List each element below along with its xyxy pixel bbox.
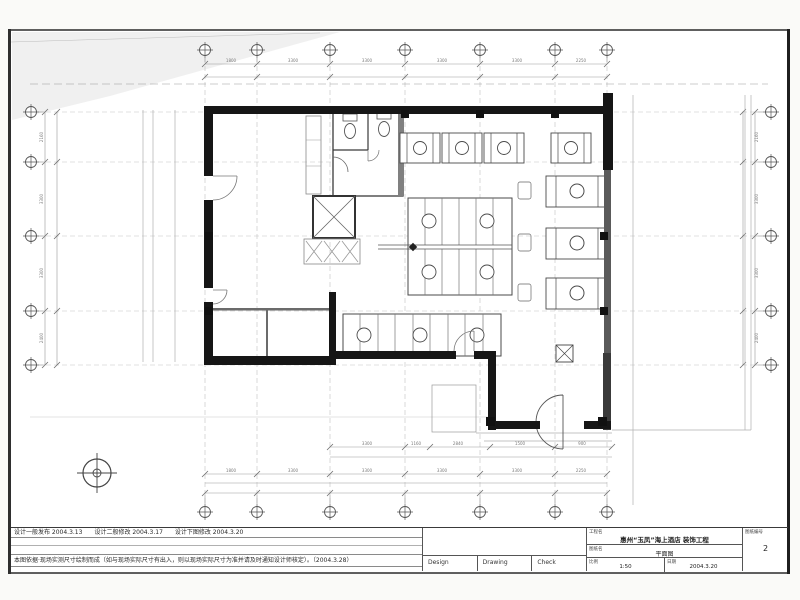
date-value: 2004.3.20 [665, 558, 742, 570]
svg-text:2400: 2400 [754, 332, 759, 343]
dining-table [546, 176, 608, 207]
drawing-name-row: 图纸名 平面图 [587, 545, 742, 558]
drawing-cell: Drawing [478, 556, 533, 571]
wc-fixture [379, 122, 390, 137]
drawing-name-label: 图纸名 [589, 546, 603, 552]
svg-text:1160: 1160 [411, 441, 422, 446]
svg-text:3300: 3300 [512, 468, 523, 473]
dining-tables-bottom-row [343, 314, 501, 356]
svg-text:3300: 3300 [437, 58, 448, 63]
scanned-floor-plan-page: 1800 3300 3300 3300 3300 2250 1800 3300 … [0, 0, 800, 600]
dining-table [442, 133, 482, 163]
sheet-number-label: 图纸编号 [745, 529, 763, 535]
title-block-strip: 设计一般发布 2004.3.13 设计二般修改 2004.3.17 设计下图修改… [11, 527, 788, 571]
svg-text:3300: 3300 [362, 58, 373, 63]
empty-row [11, 546, 422, 555]
dining-table [400, 133, 440, 163]
dining-table [484, 133, 524, 163]
svg-text:3300: 3300 [362, 468, 373, 473]
toilet-area [333, 112, 404, 196]
svg-text:3300: 3300 [39, 267, 44, 278]
scan-edge-left [8, 29, 11, 574]
svg-text:3300: 3300 [39, 193, 44, 204]
svg-text:2250: 2250 [576, 58, 587, 63]
svg-text:3300: 3300 [362, 441, 373, 446]
svg-text:1800: 1800 [226, 468, 237, 473]
revision-note-line: 设计一般发布 2004.3.13 设计二般修改 2004.3.17 设计下图修改… [11, 528, 422, 538]
svg-text:900: 900 [578, 441, 586, 446]
scan-edge-right [787, 29, 790, 574]
svg-text:3300: 3300 [754, 193, 759, 204]
project-name-label: 工程名 [589, 529, 603, 535]
svg-text:3300: 3300 [288, 58, 299, 63]
signoff-row: Design Drawing Check [423, 556, 586, 571]
design-cell: Design [423, 556, 478, 571]
svg-text:3300: 3300 [754, 267, 759, 278]
dining-table [551, 133, 591, 163]
sheet-number-box: 图纸编号 2 [743, 528, 788, 571]
empty-row [11, 538, 422, 546]
check-cell: Check [532, 556, 586, 571]
signoff-blank-cell [423, 528, 586, 556]
svg-text:1500: 1500 [515, 441, 526, 446]
title-block: 工程名 惠州“玉凤”海上酒店 装饰工程 图纸名 平面图 比例 1:50 日期 2… [587, 528, 743, 571]
scale-date-row: 比例 1:50 日期 2004.3.20 [587, 558, 742, 572]
general-note-line: 本图依据·现场实测尺寸绘制而成（如与现场实际尺寸有出入，则以现场实际尺寸为准并请… [11, 555, 422, 567]
project-name-row: 工程名 惠州“玉凤”海上酒店 装饰工程 [587, 528, 742, 545]
wc-fixture [345, 124, 356, 139]
project-name-value: 惠州“玉凤”海上酒店 装饰工程 [587, 528, 742, 544]
svg-text:3300: 3300 [288, 468, 299, 473]
dining-table [546, 278, 608, 309]
svg-text:3300: 3300 [437, 468, 448, 473]
scale-value: 1:50 [587, 558, 664, 570]
svg-text:3300: 3300 [512, 58, 523, 63]
scale-cell: 比例 1:50 [587, 558, 665, 572]
date-label: 日期 [667, 559, 676, 565]
dining-table [546, 228, 608, 259]
drawing-name-value: 平面图 [587, 545, 742, 558]
dining-tables-top-row [400, 133, 591, 163]
svg-text:2400: 2400 [39, 332, 44, 343]
svg-text:1800: 1800 [226, 58, 237, 63]
svg-text:2160: 2160 [39, 131, 44, 142]
date-cell: 日期 2004.3.20 [665, 558, 742, 572]
signoff-section: Design Drawing Check [423, 528, 587, 571]
scale-label: 比例 [589, 559, 598, 565]
elevator-shaft [313, 196, 355, 238]
svg-text:2250: 2250 [576, 468, 587, 473]
svg-text:2160: 2160 [754, 131, 759, 142]
floor-plan-drawing: 1800 3300 3300 3300 3300 2250 1800 3300 … [0, 0, 800, 600]
revision-notes: 设计一般发布 2004.3.13 设计二般修改 2004.3.17 设计下图修改… [11, 528, 423, 571]
svg-text:2840: 2840 [453, 441, 464, 446]
